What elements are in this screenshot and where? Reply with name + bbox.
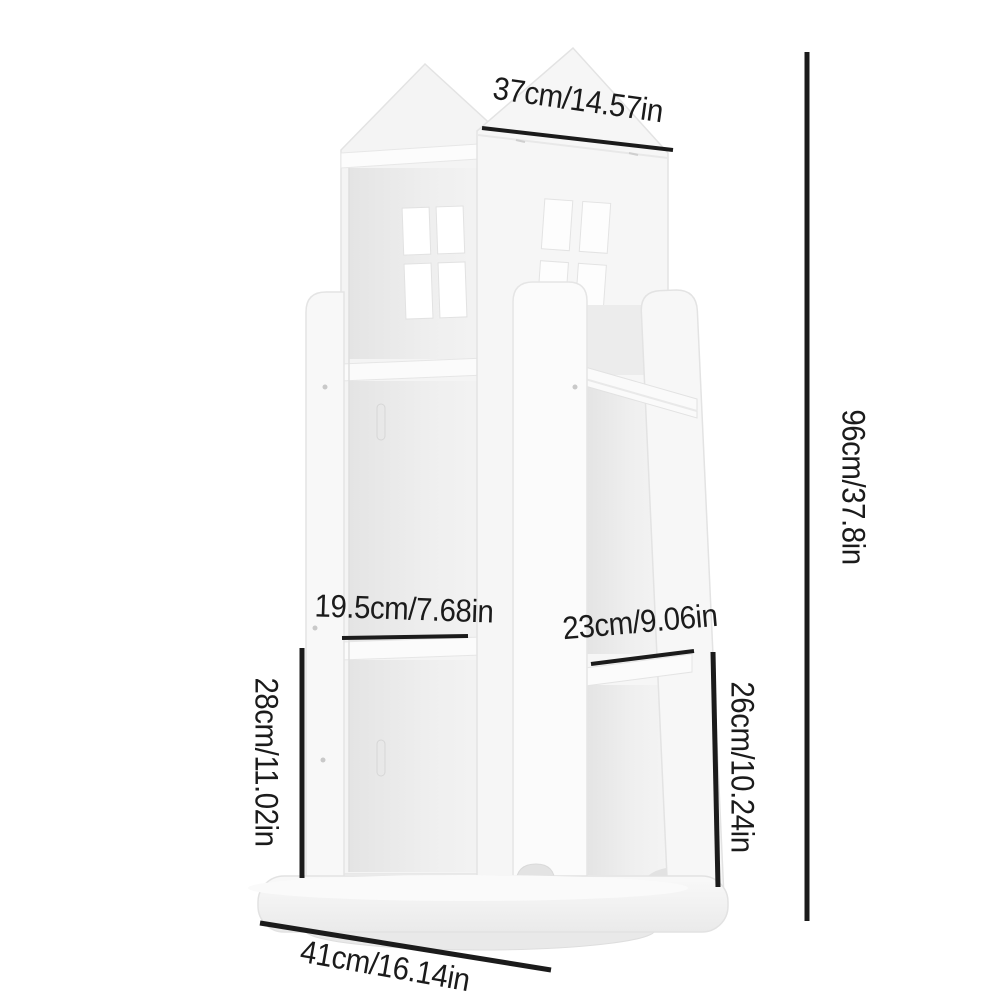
dim-label-overall-height: 96cm/37.8in [835, 409, 872, 564]
dim-label-left-opening-height: 28cm/11.02in [248, 677, 285, 846]
dim-label-right-opening-height: 26cm/10.24in [724, 681, 761, 852]
product-dimension-diagram: 37cm/14.57in 96cm/37.8in 19.5cm/7.68in 2… [0, 0, 1000, 1000]
dim-line-left-opening-width [342, 636, 468, 638]
left-divider-panel [306, 292, 344, 878]
dim-label-left-opening-width: 19.5cm/7.68in [314, 587, 494, 630]
center-divider-panel [513, 282, 587, 906]
